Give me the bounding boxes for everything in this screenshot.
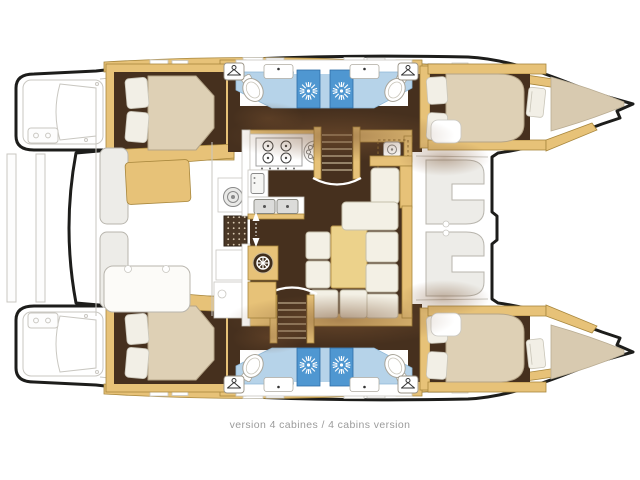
hatch-icon — [443, 230, 449, 236]
cup-holder-icon — [125, 266, 132, 273]
cockpit-table — [104, 266, 190, 312]
cockpit-bench-cushion — [125, 159, 191, 204]
dinette-table — [331, 226, 367, 288]
sofa-cushion — [342, 202, 398, 230]
nav-seat — [371, 168, 399, 204]
catamaran-floorplan: version 4 cabines / 4 cabins version — [0, 0, 640, 480]
ships-wheel-icon — [248, 246, 278, 280]
cockpit-bench-back — [100, 148, 128, 224]
sofa-cushion — [366, 264, 398, 292]
cup-holder-icon — [163, 266, 170, 273]
sofa-cushion — [306, 232, 330, 259]
fridge-icon — [251, 174, 264, 194]
hanger-icon — [398, 376, 418, 393]
floorplan-svg — [0, 0, 640, 480]
sofa-cushion — [366, 232, 398, 262]
plan-caption: version 4 cabines / 4 cabins version — [0, 419, 640, 431]
hatch-icon — [443, 221, 449, 227]
winch-icon — [224, 188, 243, 207]
sofa-cushion — [306, 261, 330, 288]
hanger-icon — [224, 376, 244, 393]
aft-platform — [7, 154, 45, 302]
hanger-icon — [224, 63, 244, 80]
deck-grate-icon — [224, 216, 247, 246]
hatch-icon — [218, 290, 226, 298]
hanger-icon — [398, 63, 418, 80]
